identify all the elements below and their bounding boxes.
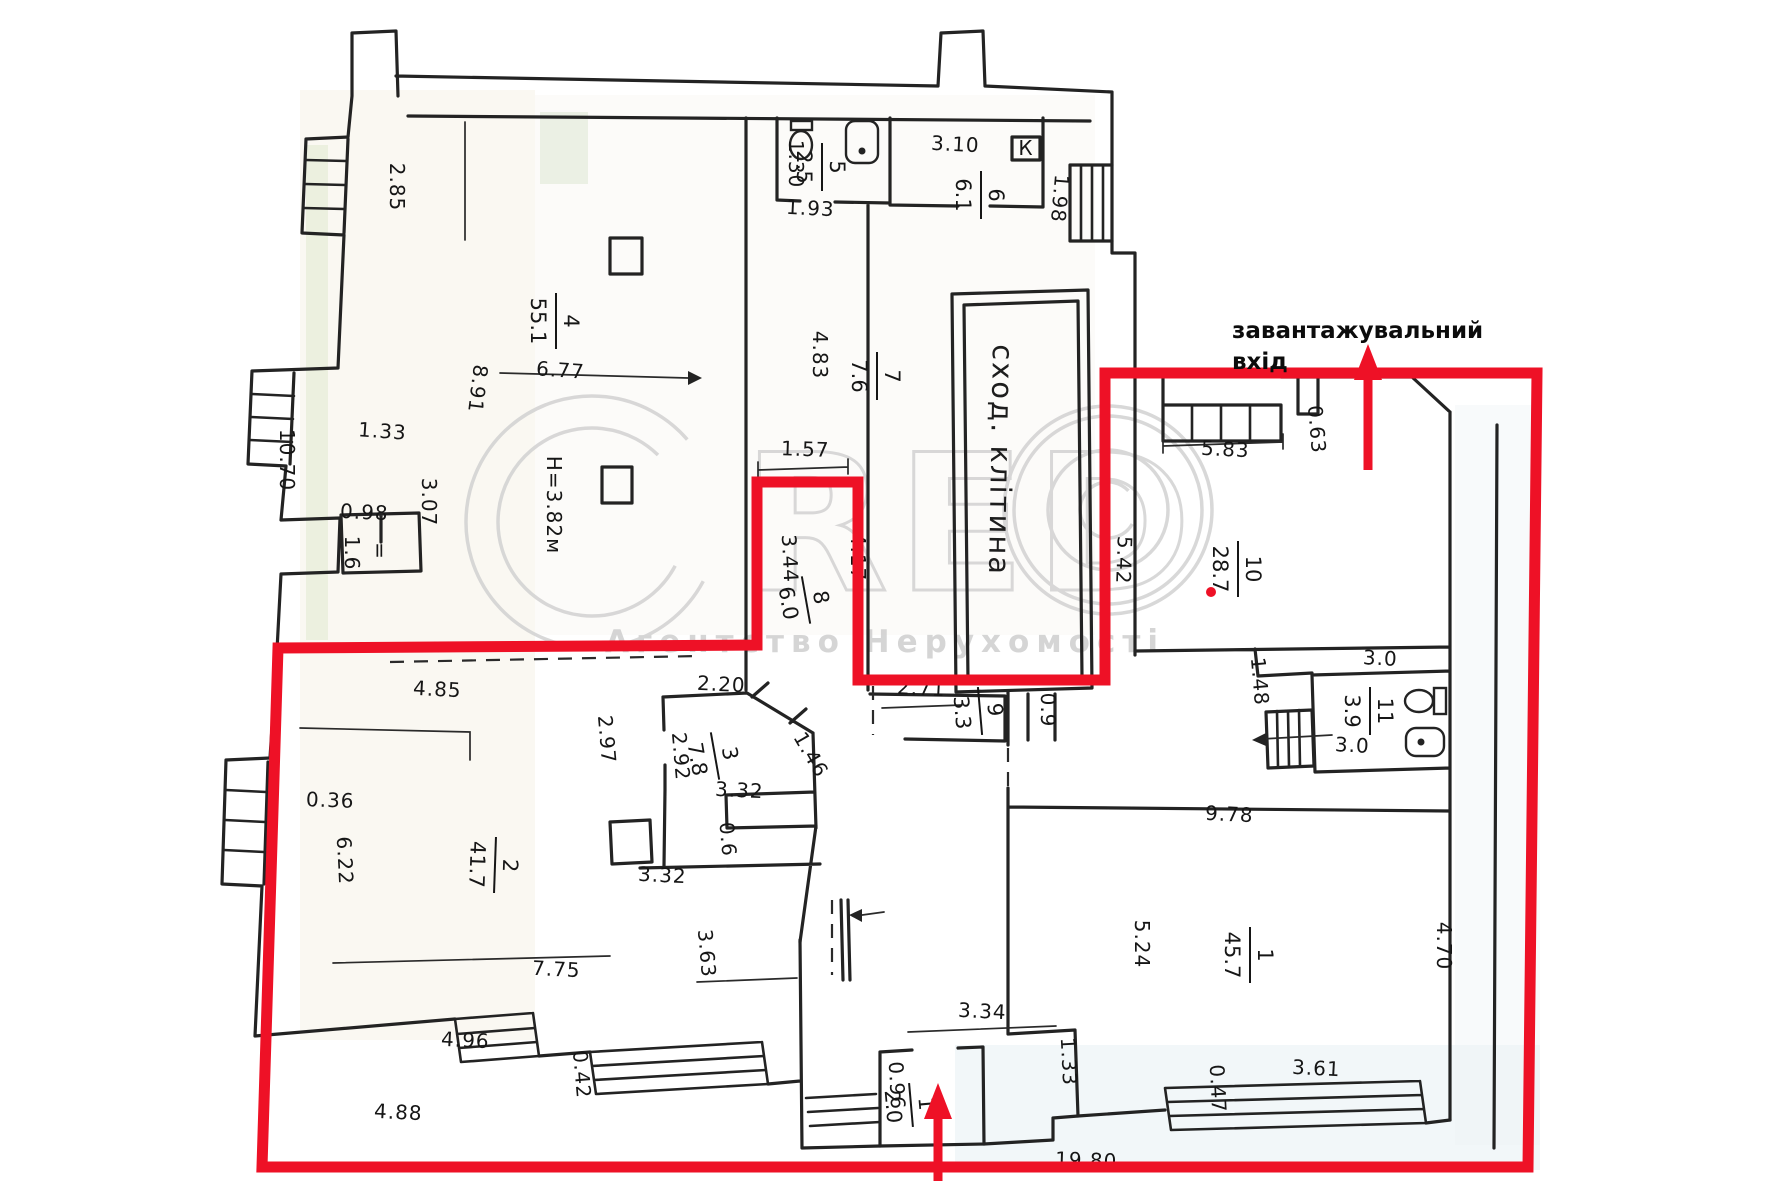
- staircase-hatch-bottom-3: [806, 1094, 880, 1126]
- dim-label: 4.70: [1432, 922, 1456, 971]
- dim-label: 1.98: [1046, 173, 1074, 223]
- dim-label: 5.83: [1201, 436, 1251, 463]
- svg-text:4: 4: [559, 314, 583, 327]
- dim-label: 0.63: [1303, 404, 1331, 454]
- dim-label: 0.98: [340, 499, 390, 526]
- dim-label: 1.93: [786, 195, 836, 222]
- svg-text:7.6: 7.6: [847, 359, 871, 392]
- room-label-11: 113.9: [1340, 687, 1397, 735]
- closet-box: [610, 820, 652, 864]
- red-dot-marker: [1206, 587, 1216, 597]
- svg-text:5: 5: [825, 160, 849, 173]
- dim-label: 3.32: [638, 862, 688, 889]
- stairs-arrowhead: [1252, 733, 1266, 746]
- sink-drain-icon: [859, 148, 866, 155]
- dim-label: 9.78: [1205, 801, 1255, 828]
- dim-label: 6.22: [332, 836, 359, 886]
- dim-label: 3.44: [777, 534, 804, 584]
- dim-label: 1.48: [1246, 656, 1274, 706]
- stamp-smudge: [540, 112, 588, 184]
- dim-label: 3.0: [1334, 732, 1370, 758]
- svg-text:10: 10: [1241, 556, 1265, 583]
- svg-text:9: 9: [982, 702, 1007, 717]
- dim-label: 6.77: [535, 356, 585, 383]
- svg-text:55.1: 55.1: [526, 298, 550, 345]
- annotation-line1: завантажувальний: [1232, 318, 1483, 344]
- svg-text:1: 1: [1253, 948, 1277, 961]
- door-arrowhead: [849, 909, 862, 922]
- red-arrow-top: [1354, 344, 1382, 470]
- room-label-1: 145.7: [1220, 927, 1277, 983]
- dim-label: 4.85: [413, 676, 463, 703]
- svg-text:6: 6: [984, 188, 1008, 201]
- dim-label: 3.34: [958, 998, 1008, 1025]
- dim-label: 0.9: [1036, 693, 1060, 728]
- paper-blue-zone: [955, 1045, 1540, 1170]
- dim-label: 1.46: [789, 727, 834, 781]
- dim-label: 0.36: [306, 787, 355, 813]
- dim-label: =: [368, 542, 392, 560]
- toilet-icon: [1434, 688, 1446, 714]
- bathroom-fixtures-right: [1405, 688, 1446, 756]
- sink-icon: [1406, 728, 1444, 756]
- sink-drain-icon: [1418, 739, 1425, 746]
- svg-text:3.3: 3.3: [949, 695, 976, 730]
- toilet-bowl-icon: [1405, 690, 1433, 712]
- dim-label: 5.24: [1130, 920, 1154, 969]
- staircase-hatch-bottom-2: [590, 1042, 768, 1094]
- svg-text:3: 3: [717, 745, 743, 762]
- stairwell-label: сход. клітина: [982, 344, 1020, 576]
- dim-label: 10.70: [275, 429, 299, 491]
- dim-label: 1.6: [340, 536, 364, 571]
- loading-entrance-annotation: завантажувальний вхід: [1232, 318, 1483, 375]
- boiler-label: К: [1018, 136, 1033, 160]
- paper-beige-zone: [300, 90, 535, 1040]
- dim-label: 4.96: [441, 1027, 491, 1054]
- svg-text:2: 2: [498, 858, 522, 872]
- svg-text:28.7: 28.7: [1208, 546, 1232, 593]
- svg-text:2.5: 2.5: [792, 150, 816, 183]
- dim-label: 0.47: [1205, 1064, 1232, 1114]
- dim-label: 3.32: [715, 777, 765, 804]
- dim-label: 7.75: [532, 956, 582, 983]
- dim-label: 4.83: [808, 331, 832, 380]
- dim-label: 5.42: [1111, 536, 1137, 585]
- dim-label: 3.10: [931, 131, 981, 158]
- dim-label: 1.33: [1056, 1037, 1083, 1087]
- dim-label: 1.57: [781, 436, 830, 462]
- floor-plan-svg: RED Агентство Нерухомості: [0, 0, 1772, 1181]
- room-label-10: 1028.7: [1208, 541, 1265, 597]
- annotation-line2: вхід: [1232, 349, 1288, 375]
- svg-text:2.0: 2.0: [880, 1089, 907, 1124]
- dim-label: 0.6: [715, 821, 742, 858]
- svg-text:41.7: 41.7: [464, 841, 490, 889]
- dim-label: 0.42: [568, 1049, 596, 1099]
- staircase-hatch-left-low: [224, 790, 266, 852]
- green-streak: [306, 145, 328, 640]
- svg-text:6.1: 6.1: [951, 178, 975, 211]
- dim-label: 3.61: [1292, 1055, 1342, 1082]
- svg-text:7: 7: [880, 369, 904, 382]
- dim-label: 3.0: [1362, 645, 1398, 671]
- svg-text:3.9: 3.9: [1340, 694, 1364, 727]
- dim-label: 3.63: [693, 928, 721, 978]
- floor-plan-page: RED Агентство Нерухомості: [0, 0, 1772, 1181]
- dim-label: 3.07: [417, 478, 441, 527]
- dim-label: 2.85: [385, 163, 409, 212]
- dim-label: 2.97: [593, 714, 621, 764]
- dim-label: 1.33: [357, 417, 407, 444]
- dim-label: 2.20: [697, 671, 747, 698]
- svg-text:11: 11: [1373, 698, 1397, 725]
- height-note-label: Н=3.82м: [542, 456, 566, 554]
- dim-label: 4.88: [374, 1099, 424, 1126]
- svg-text:45.7: 45.7: [1220, 932, 1244, 979]
